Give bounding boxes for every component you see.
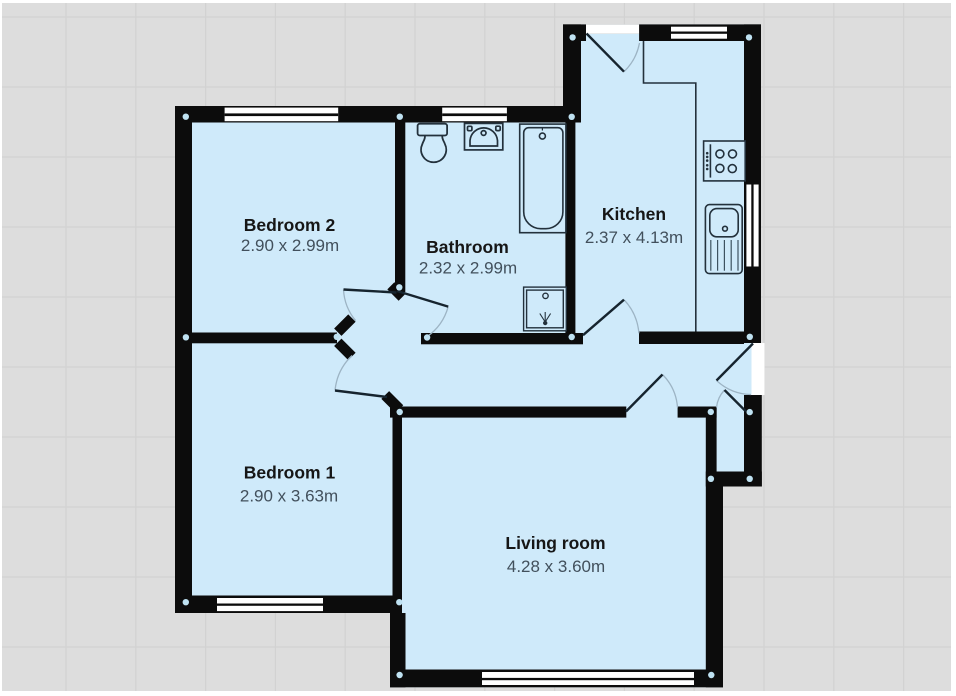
svg-text:2.90 x 3.63m: 2.90 x 3.63m (240, 487, 338, 506)
svg-text:Living room: Living room (505, 533, 605, 553)
svg-text:Kitchen: Kitchen (602, 204, 666, 224)
svg-text:Bedroom 2: Bedroom 2 (244, 215, 336, 235)
svg-text:Bathroom: Bathroom (426, 237, 509, 257)
svg-text:2.32 x 2.99m: 2.32 x 2.99m (419, 259, 517, 278)
svg-text:2.37 x 4.13m: 2.37 x 4.13m (585, 228, 683, 247)
svg-text:2.90 x 2.99m: 2.90 x 2.99m (241, 236, 339, 255)
svg-text:Bedroom 1: Bedroom 1 (244, 463, 336, 483)
svg-text:4.28 x 3.60m: 4.28 x 3.60m (507, 557, 605, 576)
